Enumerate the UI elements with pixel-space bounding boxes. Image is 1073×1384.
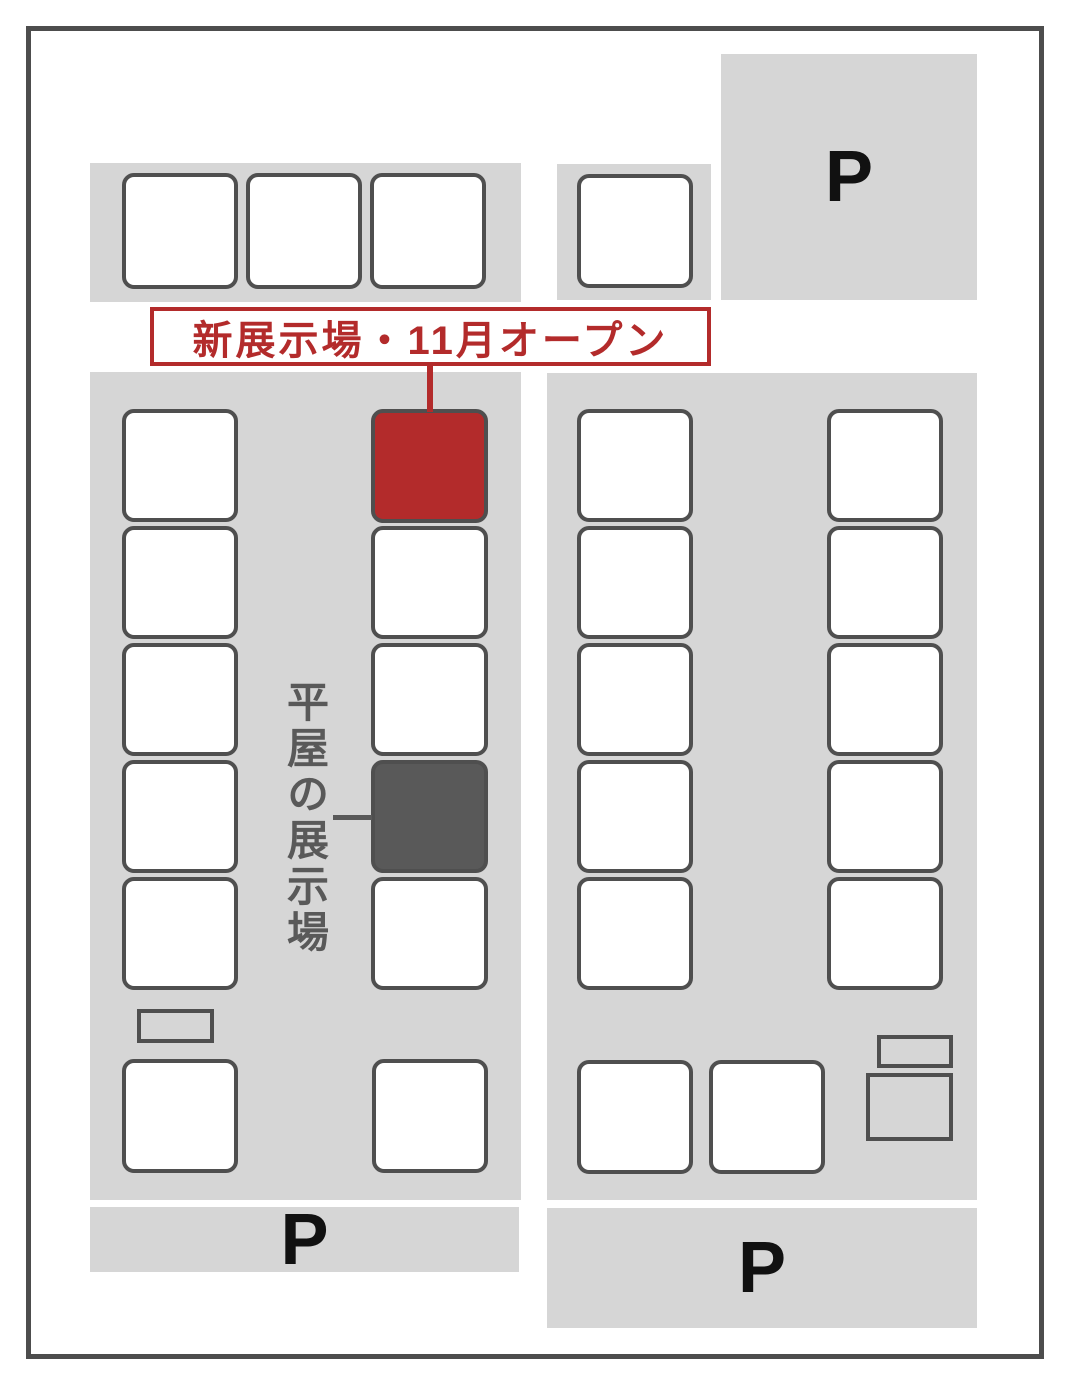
exhibition-lot (827, 643, 943, 756)
new-site-label-text: 新展示場・11月オープン (193, 308, 669, 366)
exhibition-lot (577, 174, 693, 288)
parking-letter: P (280, 1199, 328, 1281)
hiraya-connector-line (333, 815, 372, 820)
exhibition-lot (122, 643, 238, 756)
exhibition-lot (371, 526, 488, 639)
new-exhibition-lot (371, 409, 488, 523)
parking-area-bottom-left: P (90, 1207, 519, 1272)
service-rect (137, 1009, 214, 1043)
exhibition-lot (577, 877, 693, 990)
exhibition-lot (122, 1059, 238, 1173)
exhibition-lot (371, 643, 488, 756)
exhibition-lot (122, 877, 238, 990)
exhibition-lot (371, 877, 488, 990)
exhibition-lot (709, 1060, 825, 1174)
service-rect (877, 1035, 953, 1068)
exhibition-lot (577, 1060, 693, 1174)
new-site-label-box: 新展示場・11月オープン (150, 307, 711, 366)
exhibition-site-map: P P P 新展示場・11月オープン 平屋の展示場 (0, 0, 1073, 1384)
exhibition-lot (372, 1059, 488, 1173)
new-site-connector-line (427, 364, 433, 412)
exhibition-lot (827, 877, 943, 990)
hiraya-exhibition-lot (371, 760, 488, 873)
exhibition-lot (577, 526, 693, 639)
exhibition-lot (827, 526, 943, 639)
exhibition-lot (827, 409, 943, 522)
exhibition-lot (122, 760, 238, 873)
exhibition-lot (577, 760, 693, 873)
parking-area-top-right: P (721, 54, 977, 300)
exhibition-lot (577, 409, 693, 522)
parking-letter: P (738, 1227, 786, 1309)
exhibition-lot (370, 173, 486, 289)
exhibition-lot (122, 526, 238, 639)
parking-area-bottom-right: P (547, 1208, 977, 1328)
parking-letter: P (825, 136, 873, 218)
exhibition-lot (122, 409, 238, 522)
exhibition-lot (122, 173, 238, 289)
service-rect (866, 1073, 953, 1141)
exhibition-lot (827, 760, 943, 873)
hiraya-label-text: 平屋の展示場 (281, 676, 329, 960)
exhibition-lot (577, 643, 693, 756)
exhibition-lot (246, 173, 362, 289)
